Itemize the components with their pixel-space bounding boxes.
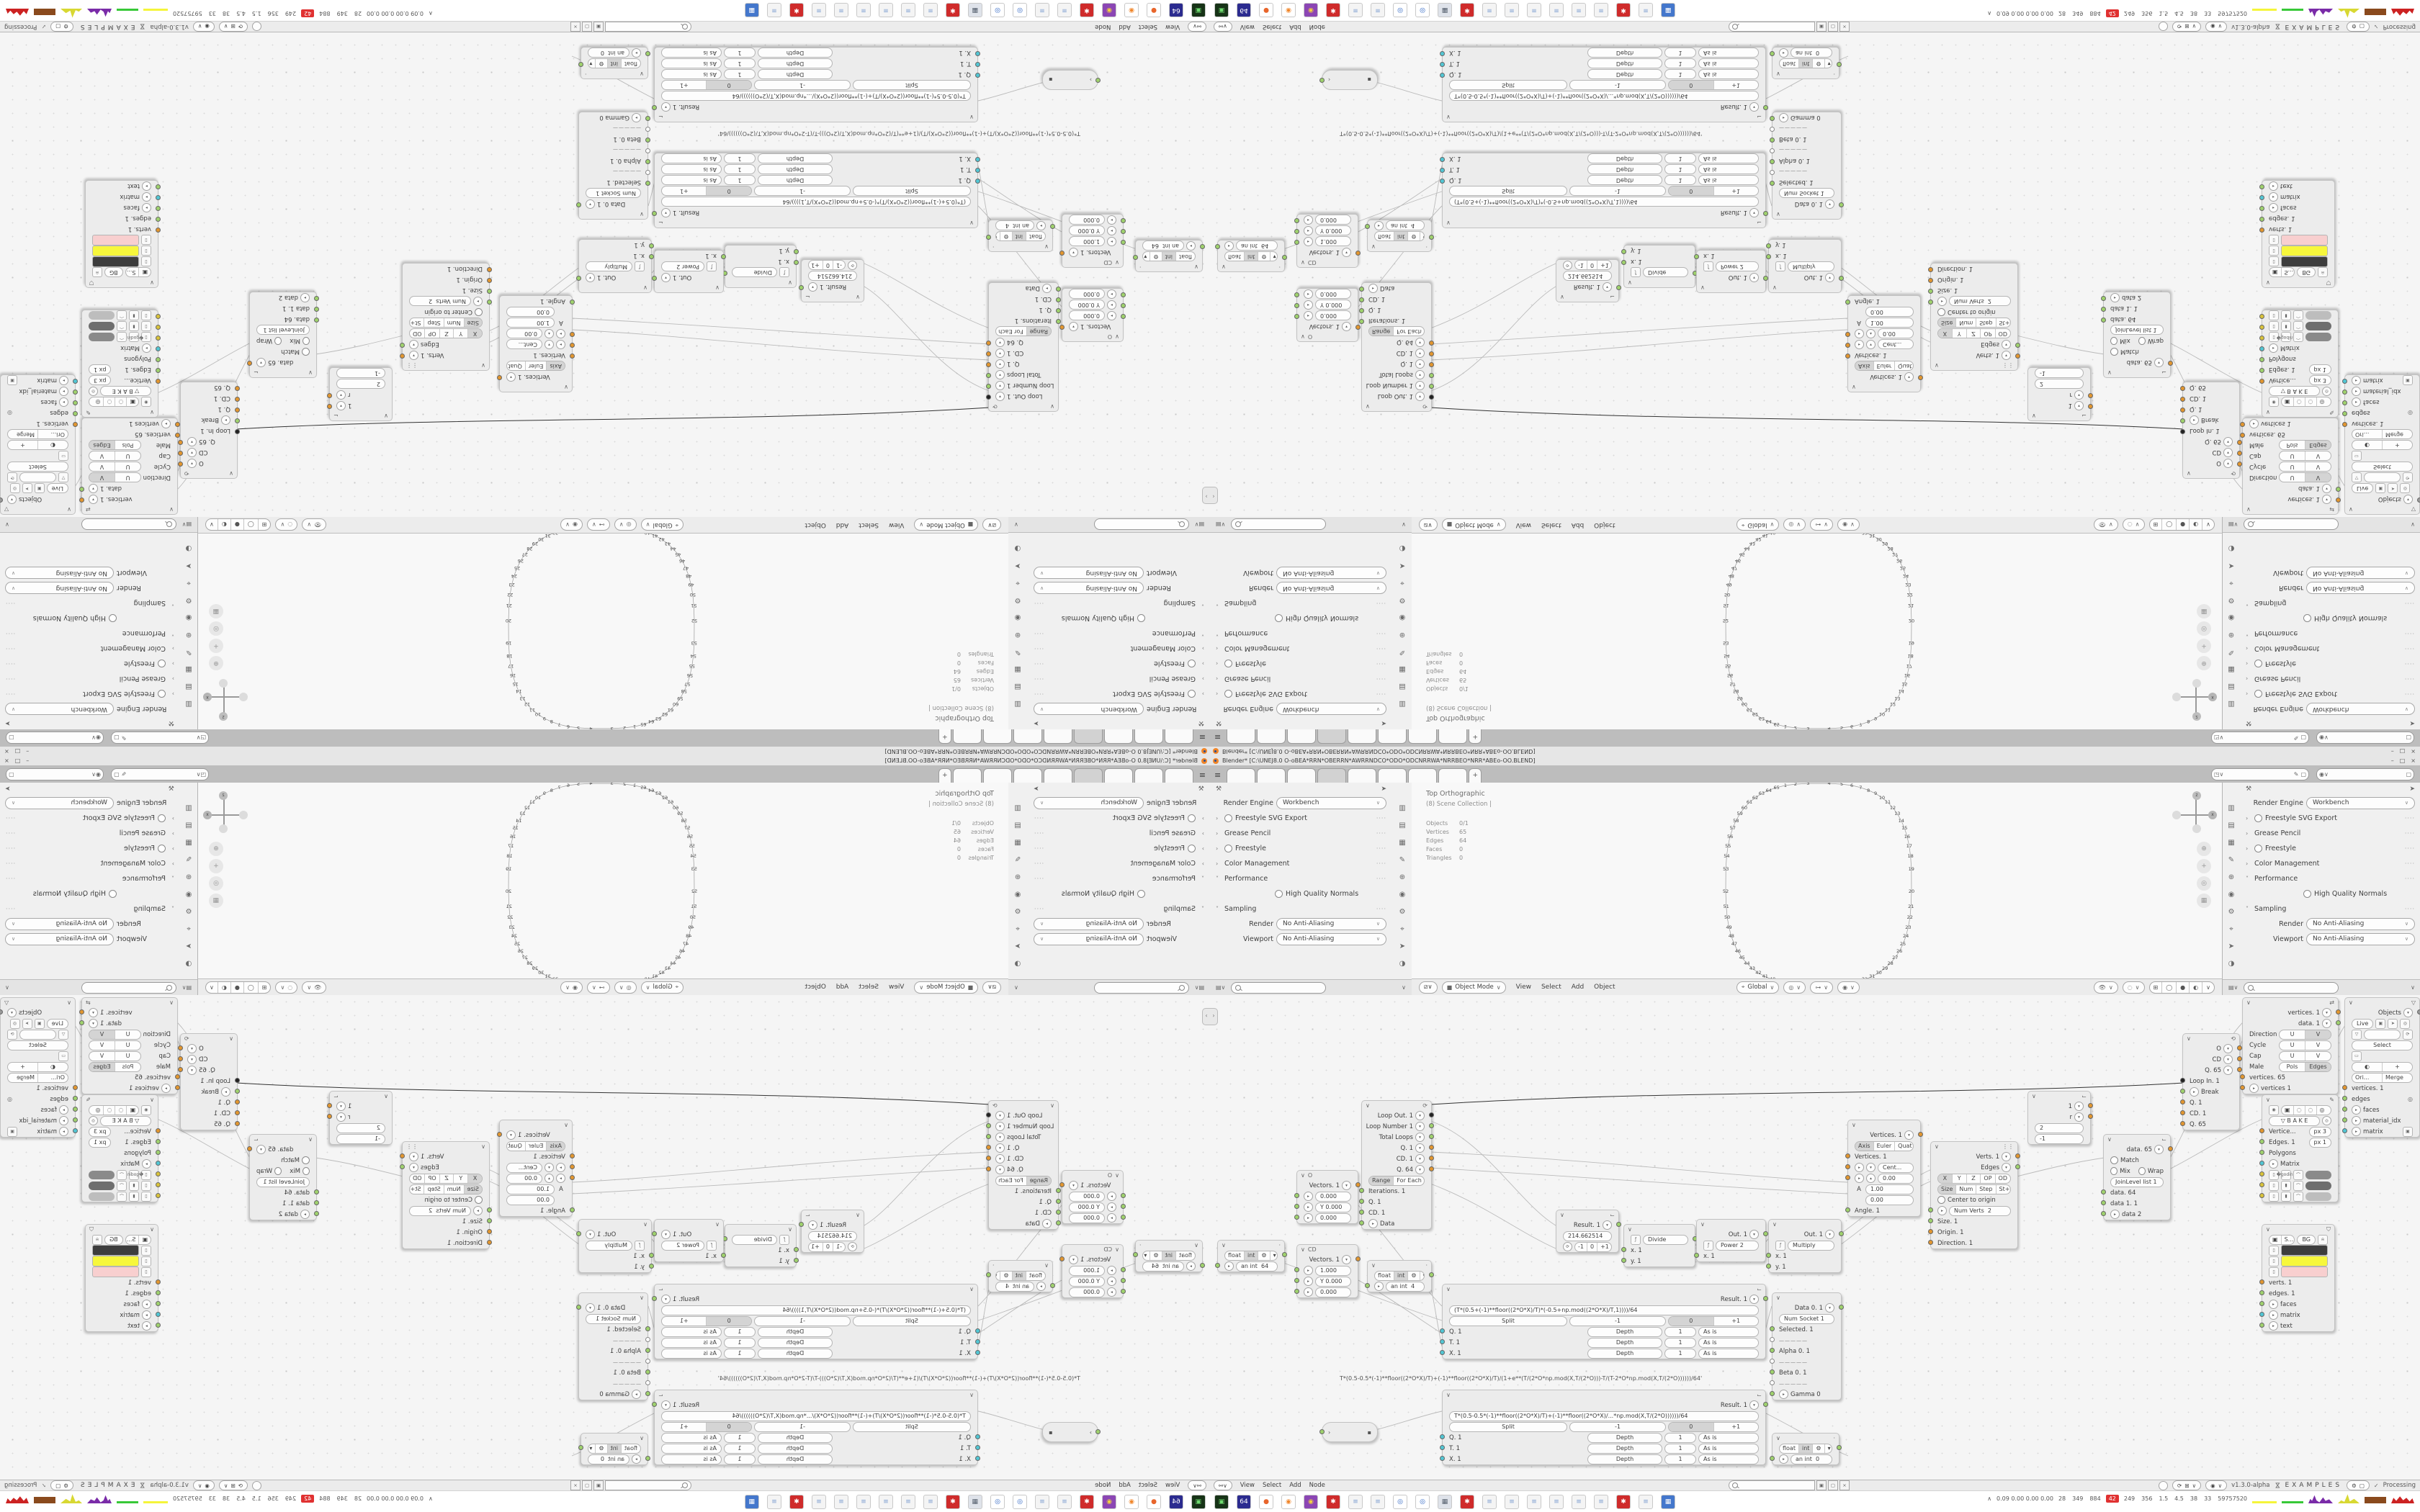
socket[interactable] [2342,1128,2347,1133]
expression-value[interactable]: 214.662514 [1563,271,1612,282]
trash-icon[interactable]: ▭ [2352,1051,2362,1061]
depth-button[interactable]: Depth [758,1433,833,1443]
int-value[interactable]: an int 4 [995,1282,1034,1292]
pan-tool-button[interactable]: + [209,859,223,873]
socket[interactable] [2237,451,2242,456]
center-select[interactable]: Cent... [506,1163,542,1173]
as-is-select[interactable]: As is [1698,59,1759,69]
socket[interactable] [1763,105,1768,110]
gizmo-x-axis[interactable]: x [2208,693,2217,701]
step-buttons[interactable]: -10+1 [808,261,846,271]
properties-tab-icon[interactable]: ◑ [186,960,192,968]
viewport-aa-select[interactable]: No Anti-Aliasing∨ [2306,933,2415,945]
range-value[interactable]: 2 [336,379,385,390]
menu-add[interactable]: Add [1289,23,1301,30]
node-loop-out[interactable]: ∨⟲ O▾ CD▾ Q. 65▾ Loop In. 1 ▸Break Q. 1 … [180,382,238,479]
as-is-select[interactable]: As is [1698,1433,1759,1443]
node-line[interactable]: ∨⋮⋮ Verts. 1▾ Edges▾ XYZOPOD SizeNumStep… [402,263,490,371]
socket[interactable] [487,289,492,294]
node-math-divide[interactable]: ∨ ƒDivide x. 1 y. 1 [725,1224,797,1267]
filter-button[interactable]: ▣ [593,1480,604,1490]
gizmo-minus-y[interactable] [2192,679,2201,688]
text-style-preview[interactable] [2305,1192,2331,1201]
socket[interactable] [1440,51,1445,56]
node-list-join[interactable]: ∨⌙ data. 65▾ Match MixWrap JoinLevel lis… [2103,292,2171,378]
text-style-preview[interactable] [2305,1182,2331,1190]
socket[interactable] [645,51,650,56]
properties-tab-icon[interactable]: ▦ [1399,839,1405,847]
gizmo-minus-y[interactable] [2192,824,2201,833]
freestyle-svg-checkbox[interactable] [1224,814,1232,822]
new-tree-button[interactable]: ▢ [1828,22,1838,32]
offscreen-icon[interactable] [252,22,261,32]
node-reroute[interactable]: ›▪ [1322,1422,1378,1442]
gizmo-x-axis[interactable]: x [203,693,212,701]
male-switch[interactable]: PolsEdges [89,1062,141,1072]
editor-type-button[interactable]: ▤∨ [182,984,192,991]
socket[interactable] [1845,300,1850,305]
red-gear-icon[interactable]: ✱ [1080,1495,1094,1509]
socket[interactable] [1319,1429,1325,1434]
socket[interactable] [1294,1289,1299,1294]
socket[interactable] [986,384,991,389]
node-loop-out[interactable]: ∨⟲ O▾ CD▾ Q. 65▾ Loop In. 1 ▸Break Q. 1 … [180,1033,238,1130]
socket[interactable] [178,440,183,445]
workspace-tabs[interactable] [1227,729,1467,747]
socket[interactable] [1770,170,1775,175]
node-line[interactable]: ∨⋮⋮ Verts. 1▾ Edges▾ XYZOPOD SizeNumStep… [1930,1141,2018,1249]
bg-button[interactable]: BG [104,1235,123,1245]
formula-expression[interactable]: T*(0.5-0.5*(-1)**floor((2*O*X)/T)+(-1)**… [661,1411,971,1421]
socket[interactable] [2342,411,2347,416]
int-value[interactable]: an int 0 [1791,1454,1832,1464]
viewer-toggle[interactable]: ▣ S... [125,1235,151,1245]
workspace-tab[interactable] [1378,729,1407,744]
record-icon[interactable]: ◎ [89,387,98,396]
workspace-tab[interactable] [983,729,1012,744]
node-switcher[interactable]: ∨ Data 0. 1▾ Num Socket 1 Selected. 1 ——… [578,112,648,220]
number-type-switch[interactable]: floatint⚙▾ [588,59,641,69]
socket[interactable] [1928,289,1933,294]
options-chevron[interactable]: ∨ [5,984,9,991]
socket[interactable] [1121,218,1126,223]
properties-tab-icon[interactable]: ◉ [2228,613,2235,621]
pivot-point-select[interactable]: ◎∨ [1783,519,1806,531]
depth-button[interactable]: Depth [758,1349,833,1359]
notepad-icon[interactable]: ≡ [1348,1495,1363,1509]
socket[interactable] [975,51,980,56]
socket[interactable] [975,1434,980,1439]
node-viewer-index[interactable]: ∨✎ ◉▣◌◌◎ ▽ B A K E◎ Vertice...px 3 Edges… [81,1094,158,1202]
gizmo-minus-y[interactable] [219,824,228,833]
workspace-tab[interactable] [1044,729,1072,744]
axis-x-value[interactable]: 0.00 [506,329,542,339]
editor-type-button[interactable]: ▤∨ [2228,521,2238,528]
as-is-select[interactable]: As is [661,1327,722,1337]
properties-tab-icon[interactable]: ▦ [185,839,192,847]
socket[interactable] [2180,1110,2185,1115]
length-mode-switch[interactable]: SizeNumStepSt+Si [409,1184,483,1194]
properties-tab-icon[interactable]: ✎ [186,856,192,864]
socket[interactable] [156,1150,161,1155]
socket[interactable] [2180,418,2185,423]
split-button[interactable]: Split [853,81,971,91]
socket[interactable] [1359,308,1364,313]
node-math-multiply[interactable]: ∨ Out. 1▾ ƒMultiply x. 1 y. 1 [1768,239,1842,293]
grid-toggle-button[interactable]: ▦ [2197,604,2211,618]
properties-tab-icon[interactable]: ✎ [1015,856,1021,864]
socket[interactable] [2259,368,2264,373]
socket[interactable] [314,1189,319,1194]
node-objects-in[interactable]: ∨▽ Objects▾ Live▣➤◎ ▽⟳ Select ▭ ◐+ Ori..… [0,997,76,1138]
edge-color-swatch[interactable] [92,246,139,256]
trash-icon[interactable]: ▭ [2352,451,2362,462]
tree-settings-buttons[interactable]: ⚙▢ [2347,22,2370,32]
as-is-select[interactable]: As is [1698,165,1759,175]
disc-icon[interactable]: ◎ [1393,1495,1407,1509]
z-value[interactable]: 0.000 [1069,289,1105,300]
notepad-icon[interactable]: ≡ [1482,1495,1497,1509]
rotation-mode-switch[interactable]: AxisEulerQuat [1855,1141,1914,1151]
num-verts-value[interactable]: Num Verts 2 [409,1206,471,1216]
workspace-tab[interactable] [1013,768,1042,783]
socket[interactable] [2259,1290,2264,1295]
add-workspace-button[interactable]: + [1469,729,1482,744]
menu-node[interactable]: Node [1095,23,1111,30]
viewport-aa-select[interactable]: No Anti-Aliasing∨ [1276,933,1386,945]
render-aa-select[interactable]: No Anti-Aliasing∨ [2306,582,2415,594]
workspace-tab[interactable] [1287,729,1316,744]
socket[interactable] [2342,400,2347,405]
wrench-icon[interactable]: ⌙ [1757,1392,1762,1398]
properties-tab-icon[interactable]: ◑ [2228,544,2235,552]
socket[interactable] [1694,1253,1699,1258]
direction-switch[interactable]: UV [2279,473,2331,483]
new-tree-button[interactable]: ▢ [1828,1480,1838,1490]
record-icon[interactable]: ◎ [2322,1116,2331,1125]
live-button[interactable]: Live [2352,1019,2373,1029]
camera-icon[interactable]: ◎ [10,1019,20,1029]
wrench-icon[interactable]: ⌙ [805,294,810,300]
socket[interactable] [1440,1456,1445,1461]
properties-tab-icon[interactable]: ✎ [2228,856,2234,864]
properties-tab-strip[interactable]: ▥▤▦✎⊕◉⚙⌖➤◑ [2223,804,2239,968]
sort-switch[interactable]: ◐+ [7,1062,68,1072]
disc-icon[interactable]: ◎ [1013,3,1027,17]
match-checkbox[interactable] [2110,1156,2118,1164]
socket[interactable] [73,379,78,384]
socket[interactable] [73,1107,78,1112]
socket[interactable] [1359,319,1364,324]
socket[interactable] [1056,1220,1061,1225]
properties-tab-icon[interactable]: ⊕ [1399,631,1405,639]
socket[interactable] [652,211,657,216]
socket[interactable] [1056,297,1061,302]
socket[interactable] [1837,1445,1842,1450]
tool-icon[interactable]: ⚒ [2246,786,2251,793]
socket[interactable] [487,300,492,305]
socket[interactable] [645,181,650,186]
axis-z-value[interactable]: 0.00 [1865,1195,1914,1205]
z-value[interactable]: 0.000 [1315,215,1351,225]
pointer-icon[interactable]: ➤ [22,484,32,494]
socket[interactable] [2259,1182,2264,1187]
tree-settings-buttons[interactable]: ⚙▢ [50,22,73,32]
blender-icon[interactable]: ◉ [1281,3,1296,17]
socket[interactable] [986,1134,991,1139]
pin-icon[interactable]: ➤ [2409,786,2415,793]
tree-search-group[interactable]: ▣ ▢ × [1729,1480,1850,1490]
maximize-button[interactable]: □ [2400,748,2406,755]
refresh-icon[interactable]: ⟲ [184,1035,189,1042]
y-value[interactable]: Y 0.000 [1069,1277,1105,1287]
properties-tab-icon[interactable]: ▤ [1399,683,1405,690]
freestyle-svg-checkbox[interactable] [2254,814,2262,822]
vertex-color-swatch[interactable] [2281,256,2328,267]
socket[interactable] [2240,433,2245,438]
ghost-icon[interactable]: ⍾ [2318,268,2328,278]
notepad-icon[interactable]: ≡ [1371,1495,1385,1509]
socket[interactable] [986,1166,991,1171]
socket[interactable] [1121,1278,1126,1283]
minimize-button[interactable]: – [26,757,29,764]
properties-tab-icon[interactable]: ✎ [1015,648,1021,656]
wrap-switch[interactable]: 0+1 [1668,81,1759,91]
workspace-tab[interactable] [1074,729,1103,744]
socket[interactable] [1770,51,1775,56]
freestyle-checkbox[interactable] [2254,845,2262,852]
length-mode-switch[interactable]: SizeNumStepSt+Si [409,318,483,328]
collection-field[interactable] [19,473,56,483]
socket[interactable] [2101,307,2106,312]
vertex-color-swatch[interactable] [92,256,139,267]
workspace-tab[interactable] [1227,768,1255,783]
wrap-checkbox[interactable] [274,1167,282,1175]
maximize-button[interactable]: □ [15,748,21,755]
socket[interactable] [1429,395,1434,400]
socket[interactable] [2015,1153,2020,1158]
socket[interactable] [2259,379,2264,384]
socket[interactable] [1050,1283,1055,1288]
properties-tab-icon[interactable]: ⌖ [1400,579,1404,587]
split-button[interactable]: Split [1449,1422,1567,1432]
collection-icon[interactable]: ▽ [58,1030,68,1040]
socket[interactable] [79,498,84,503]
socket[interactable] [570,332,575,337]
properties-tab-icon[interactable]: ▦ [2228,839,2234,847]
socket[interactable] [1359,1210,1364,1215]
face-color-swatch[interactable] [2281,235,2328,246]
wrap-switch[interactable]: 0+1 [661,1316,752,1326]
notepad-icon[interactable]: ≡ [1057,1495,1072,1509]
gizmo-z-axis[interactable]: z [2192,791,2201,800]
socket[interactable] [2168,1146,2173,1151]
center-checkbox[interactable] [475,1196,483,1204]
depth-button[interactable]: Depth [758,176,833,186]
properties-tab-icon[interactable]: ▥ [185,804,192,812]
origin-merge-switch[interactable]: Ori...Merge [2352,1073,2413,1083]
node-number-64[interactable]: ∨· floatint⚙▾ ▸an int 64 [1135,1240,1203,1272]
socket[interactable] [79,1009,84,1014]
node-formula-1[interactable]: ∨⌙ Result. 1▾ (T*(0.5+(-1)**floor((2*O*X… [1442,153,1766,228]
socket[interactable] [1770,1380,1775,1385]
display-switch[interactable]: ▣◌◌◎ [89,1105,139,1115]
red-gear-icon[interactable]: ✱ [1616,3,1631,17]
show-gizmo-toggle[interactable]: 👁∨ [302,519,326,531]
node-viewer-index[interactable]: ∨✎ ◉▣◌◌◎ ▽ B A K E◎ Vertice...px 3 Edges… [2262,310,2339,418]
properties-tab-icon[interactable]: ▤ [1399,822,1405,829]
wrench-icon[interactable]: ⌙ [1757,1286,1762,1292]
node-formula-2[interactable]: ∨⌙ Result. 1▾ T*(0.5-0.5*(-1)**floor((2*… [654,47,978,122]
freestyle-svg-checkbox[interactable] [158,814,166,822]
wrench-icon[interactable]: ⌙ [2081,413,2087,419]
socket[interactable] [652,1231,657,1236]
hqn-checkbox[interactable] [109,614,117,622]
properties-tab-icon[interactable]: ⊕ [186,873,192,881]
socket[interactable] [1294,218,1299,223]
pin-icon[interactable]: ➤ [1034,719,1039,726]
draft-toggle[interactable]: ◉∨ [193,1480,215,1490]
rotation-mode-switch[interactable]: AxisEulerQuat [506,361,565,372]
shading-mode-switch[interactable]: ⊞◯●◐∨ [205,519,271,531]
level-value[interactable]: -1 [1569,186,1666,197]
menu-object[interactable]: Object [805,984,826,991]
node-objects-in[interactable]: ∨▽ Objects▾ Live▣➤◎ ▽⟳ Select ▭ ◐+ Ori..… [2344,997,2420,1138]
workspace-tab[interactable] [1348,729,1376,744]
proportional-edit-toggle[interactable]: ◉∨ [1837,519,1860,531]
socket[interactable] [1770,1326,1775,1331]
freestyle-svg-checkbox[interactable] [1224,690,1232,698]
depth-button[interactable]: Depth [1587,70,1662,80]
socket[interactable] [178,451,183,456]
node-number-4[interactable]: ∨· floatint⚙▾ ▸an int 4 [1367,1260,1432,1292]
viewer-toggle[interactable]: ▣ S... [2269,1235,2295,1245]
socket[interactable] [975,73,980,78]
screen-icon[interactable]: ▣ [2375,484,2385,494]
direction-switch[interactable]: XYZOPOD [1937,329,2011,339]
properties-tab-icon[interactable]: ⊕ [1015,873,1021,881]
x-value[interactable]: 0.000 [1069,1192,1105,1202]
socket[interactable] [1050,224,1055,229]
split-button[interactable]: Split [1449,1316,1567,1326]
properties-tab-icon[interactable]: ⚙ [186,908,192,916]
grid-toggle-button[interactable]: ▦ [209,604,223,618]
range-value[interactable]: -1 [2035,369,2084,379]
properties-tab-icon[interactable]: ◑ [2228,960,2235,968]
refresh-icon[interactable]: ⟳ [7,473,17,483]
as-is-select[interactable]: As is [661,1454,722,1464]
node-number-4[interactable]: ∨· floatint⚙▾ ▸an int 4 [1367,220,1432,252]
loop-mode-switch[interactable]: RangeFor Each [1368,1176,1425,1186]
render-aa-select[interactable]: No Anti-Aliasing∨ [1276,582,1386,594]
formula-expression[interactable]: (T*(0.5+(-1)**floor((2*O*X)/T)*(-0.5+np.… [1449,1305,1759,1315]
math-function-select[interactable]: Multiply [586,262,632,272]
socket[interactable] [2237,1056,2242,1061]
new-tree-button[interactable]: ▢ [582,1480,592,1490]
collection-field[interactable] [2364,473,2401,483]
socket[interactable] [1133,1252,1138,1257]
origin-merge-switch[interactable]: Ori...Merge [7,430,68,440]
text-style-preview[interactable] [89,1171,115,1179]
sort-switch[interactable]: ◐+ [2352,1062,2413,1072]
node-list-join[interactable]: ∨⌙ data. 65▾ Match MixWrap JoinLevel lis… [249,1134,317,1220]
node-editor-canvas[interactable]: › ∨· floatint⚙▾ ▸an int 64 ∨O Vectors. 1… [1210,32,2420,517]
socket[interactable] [487,267,492,272]
number-type-switch[interactable]: floatint⚙▾ [1779,1444,1832,1454]
math-function-select[interactable]: Divide [1643,1235,1688,1245]
properties-tab-icon[interactable]: ◉ [1015,613,1021,621]
wrench-icon[interactable]: ⌙ [254,1136,259,1143]
minimize-button[interactable]: – [26,748,29,755]
x-value[interactable]: 1.000 [1315,237,1351,247]
render-aa-select[interactable]: No Anti-Aliasing∨ [5,582,114,594]
socket[interactable] [645,1456,650,1461]
text-style-preview[interactable] [89,1182,115,1190]
properties-tab-icon[interactable]: ◑ [1399,960,1406,968]
properties-tab-icon[interactable]: ➤ [186,562,192,570]
properties-tab-strip[interactable]: ▥▤▦✎⊕◉⚙⌖➤◑ [2223,544,2239,708]
socket[interactable] [2259,1301,2264,1306]
node-loop-in[interactable]: ∨⟳ Loop Out. 1▾ Loop Number 1▾ Total Loo… [988,1100,1059,1230]
options-chevron[interactable]: ∨ [1402,984,1406,991]
tree-search-input[interactable] [1729,1480,1815,1490]
node-math-power[interactable]: ∨ Out. 1▾ ƒPower 2 x. 1 [1696,1219,1766,1262]
node-rotate[interactable]: ∨ Vertices. 1▾ AxisEulerQuat Vertices. 1… [499,1120,573,1217]
socket[interactable] [1200,244,1205,249]
socket[interactable] [2336,1020,2341,1025]
options-chevron[interactable]: ∨ [2411,984,2415,991]
pencil-icon[interactable]: ✎ [86,1097,91,1103]
live-button[interactable]: Live [47,484,68,494]
int-value[interactable]: an int 4 [995,221,1034,231]
socket[interactable] [645,1348,650,1353]
render-aa-select[interactable]: No Anti-Aliasing∨ [5,918,114,930]
socket[interactable] [2336,498,2341,503]
socket[interactable] [487,1229,492,1234]
node-math-power[interactable]: ∨ Out. 1▾ ƒPower 2 x. 1 [654,1219,724,1262]
socket[interactable] [156,1161,161,1166]
workspace-tab[interactable] [1104,729,1133,744]
socket[interactable] [1766,254,1771,259]
socket[interactable] [986,341,991,346]
z-value[interactable]: 0.000 [1315,289,1351,300]
socket[interactable] [1282,255,1287,260]
notepad-icon[interactable]: ≡ [856,1495,871,1509]
menu-select[interactable]: Select [1263,23,1281,30]
joinlevel-value[interactable]: JoinLevel list 1 [256,1177,310,1187]
chevron-up-icon[interactable]: ∧ [1987,11,1991,17]
as-is-select[interactable]: As is [661,165,722,175]
calculator-blue-icon[interactable]: ▦ [1661,1495,1675,1509]
scene-selector[interactable]: ◳∨✎▢ [2211,768,2309,780]
socket[interactable] [1429,384,1434,389]
notepad-icon[interactable]: ≡ [1527,1495,1541,1509]
split-button[interactable]: Split [1449,186,1567,197]
direction-switch[interactable]: XYZOPOD [1937,1174,2011,1184]
freestyle-checkbox[interactable] [158,845,166,852]
node-viewer-draw[interactable]: ∨⛉ ▣ S...BG⍾ ▯ ▯ ▯ verts. 1 edges. 1 ▸fa… [85,1224,158,1332]
tree-settings-buttons[interactable]: ⚙▢ [2347,1480,2370,1490]
node-math-divide[interactable]: ∨ ƒDivide x. 1 y. 1 [1623,1224,1695,1267]
vertex-color-swatch[interactable] [92,1245,139,1256]
socket[interactable] [1121,1289,1126,1294]
menu-view[interactable]: View [1516,984,1531,991]
socket[interactable] [1056,1199,1061,1204]
camera-view-button[interactable]: ◎ [209,876,223,891]
socket[interactable] [156,206,161,211]
socket[interactable] [487,1240,492,1245]
workspace-tab[interactable] [1317,768,1346,783]
